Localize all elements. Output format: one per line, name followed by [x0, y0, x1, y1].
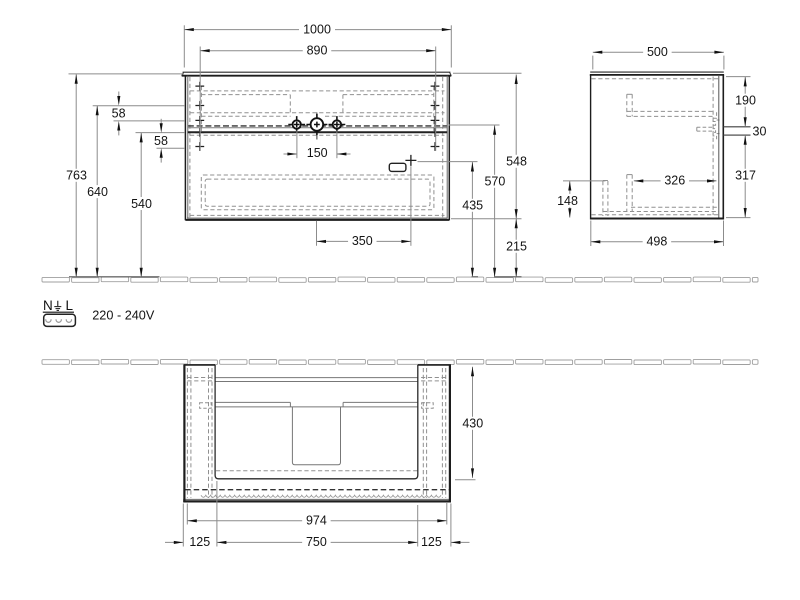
svg-text:350: 350: [352, 234, 373, 248]
svg-text:498: 498: [646, 235, 667, 249]
svg-text:148: 148: [557, 194, 578, 208]
svg-text:763: 763: [66, 169, 87, 183]
svg-text:30: 30: [753, 125, 767, 139]
svg-text:974: 974: [306, 514, 327, 528]
svg-text:890: 890: [307, 44, 328, 58]
svg-text:L: L: [66, 298, 74, 313]
svg-text:435: 435: [462, 199, 483, 213]
svg-text:1000: 1000: [303, 22, 331, 36]
svg-text:430: 430: [462, 417, 483, 431]
svg-text:220 - 240V: 220 - 240V: [92, 308, 155, 322]
svg-text:58: 58: [112, 106, 126, 120]
svg-text:750: 750: [306, 535, 327, 549]
svg-text:58: 58: [154, 134, 168, 148]
svg-text:N: N: [43, 298, 53, 313]
svg-text:215: 215: [506, 240, 527, 254]
svg-text:548: 548: [506, 155, 527, 169]
svg-text:540: 540: [131, 197, 152, 211]
svg-text:125: 125: [189, 535, 210, 549]
svg-text:326: 326: [664, 174, 685, 188]
svg-text:500: 500: [647, 45, 668, 59]
svg-text:317: 317: [735, 169, 756, 183]
svg-text:570: 570: [484, 175, 505, 189]
svg-text:125: 125: [421, 535, 442, 549]
svg-text:150: 150: [307, 146, 328, 160]
svg-text:640: 640: [87, 185, 108, 199]
svg-text:190: 190: [735, 94, 756, 108]
